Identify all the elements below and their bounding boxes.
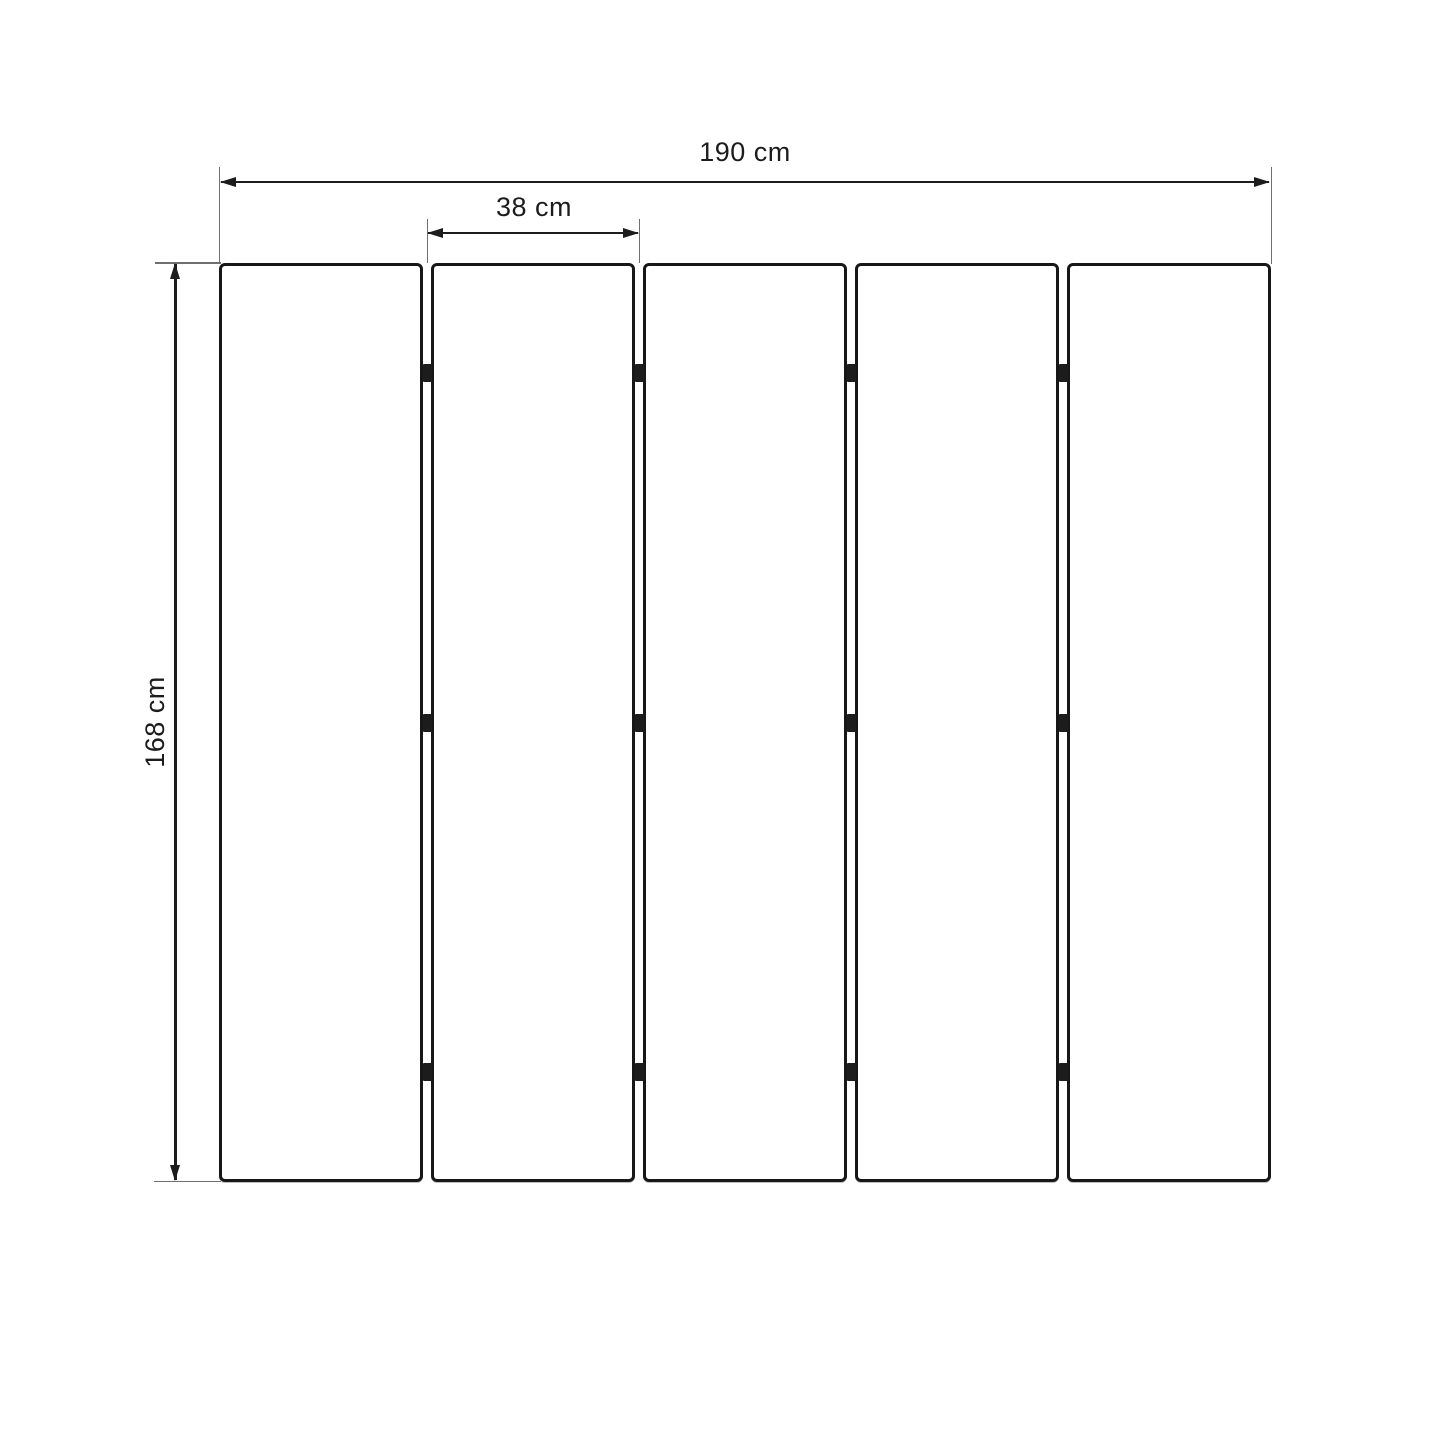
dimension-label-total-width: 190 cm	[699, 138, 791, 168]
extension-line-right	[639, 219, 641, 263]
technical-drawing-canvas: 190 cm 38 cm 168 cm	[0, 0, 1445, 1445]
hinge-icon	[423, 364, 432, 382]
panels-row	[219, 263, 1271, 1182]
panel-1	[219, 263, 423, 1182]
panel-2	[431, 263, 635, 1182]
hinge-icon	[635, 1063, 644, 1081]
arrow-down-icon	[170, 1165, 180, 1181]
arrow-right-icon	[1254, 177, 1270, 187]
hinge-icon	[423, 1063, 432, 1081]
dimension-line-height	[174, 264, 177, 1180]
extension-line-left	[427, 219, 429, 263]
dimension-label-height: 168 cm	[141, 676, 171, 768]
hinge-icon	[635, 364, 644, 382]
dimension-line-total-width	[221, 181, 1269, 184]
dimension-line-panel-width	[428, 232, 638, 235]
panel-5	[1067, 263, 1271, 1182]
extension-line-bottom	[154, 1181, 221, 1183]
hinge-icon	[635, 714, 644, 732]
dimension-label-panel-width: 38 cm	[496, 193, 572, 223]
extension-line-right	[1271, 167, 1273, 264]
hinge-icon	[1059, 364, 1068, 382]
hinge-icon	[847, 1063, 856, 1081]
panel-3	[643, 263, 847, 1182]
hinge-icon	[1059, 1063, 1068, 1081]
hinge-icon	[847, 364, 856, 382]
arrow-left-icon	[427, 228, 443, 238]
extension-line-top	[155, 262, 221, 264]
arrow-left-icon	[220, 177, 236, 187]
arrow-up-icon	[170, 263, 180, 279]
hinge-icon	[847, 714, 856, 732]
arrow-right-icon	[623, 228, 639, 238]
panel-4	[855, 263, 1059, 1182]
hinge-icon	[423, 714, 432, 732]
hinge-icon	[1059, 714, 1068, 732]
